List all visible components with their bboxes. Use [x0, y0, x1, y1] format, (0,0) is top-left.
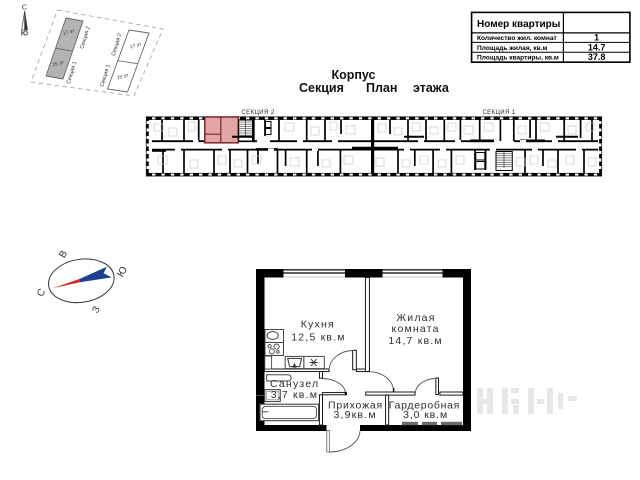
- svg-text:СЕКЦИЯ 2: СЕКЦИЯ 2: [241, 110, 274, 116]
- svg-text:Ю: Ю: [21, 31, 28, 38]
- svg-text:12,5 кв.м: 12,5 кв.м: [291, 332, 345, 344]
- svg-text:Площадь квартиры, кв.м: Площадь квартиры, кв.м: [477, 55, 559, 62]
- svg-text:Площадь жилая, кв.м: Площадь жилая, кв.м: [477, 45, 548, 52]
- svg-text:комната: комната: [392, 323, 440, 335]
- svg-text:3,7 кв.м: 3,7 кв.м: [271, 389, 318, 401]
- svg-text:Кухня: Кухня: [301, 319, 335, 331]
- svg-text:1: 1: [594, 33, 599, 43]
- svg-text:этажа: этажа: [413, 81, 450, 95]
- svg-text:C: C: [22, 3, 28, 12]
- svg-text:14,7 кв.м: 14,7 кв.м: [388, 335, 442, 347]
- svg-text:СЕКЦИЯ 1: СЕКЦИЯ 1: [482, 110, 515, 116]
- svg-text:Номер квартиры: Номер квартиры: [477, 19, 560, 30]
- svg-text:Секция: Секция: [299, 81, 344, 95]
- svg-text:Количество жил. комнат: Количество жил. комнат: [477, 35, 558, 42]
- svg-text:3,0 кв.м: 3,0 кв.м: [403, 409, 448, 421]
- svg-text:37.8: 37.8: [588, 52, 606, 62]
- svg-text:3,9кв.м: 3,9кв.м: [333, 409, 376, 421]
- svg-text:14.7: 14.7: [588, 42, 606, 52]
- svg-text:План: План: [366, 81, 397, 95]
